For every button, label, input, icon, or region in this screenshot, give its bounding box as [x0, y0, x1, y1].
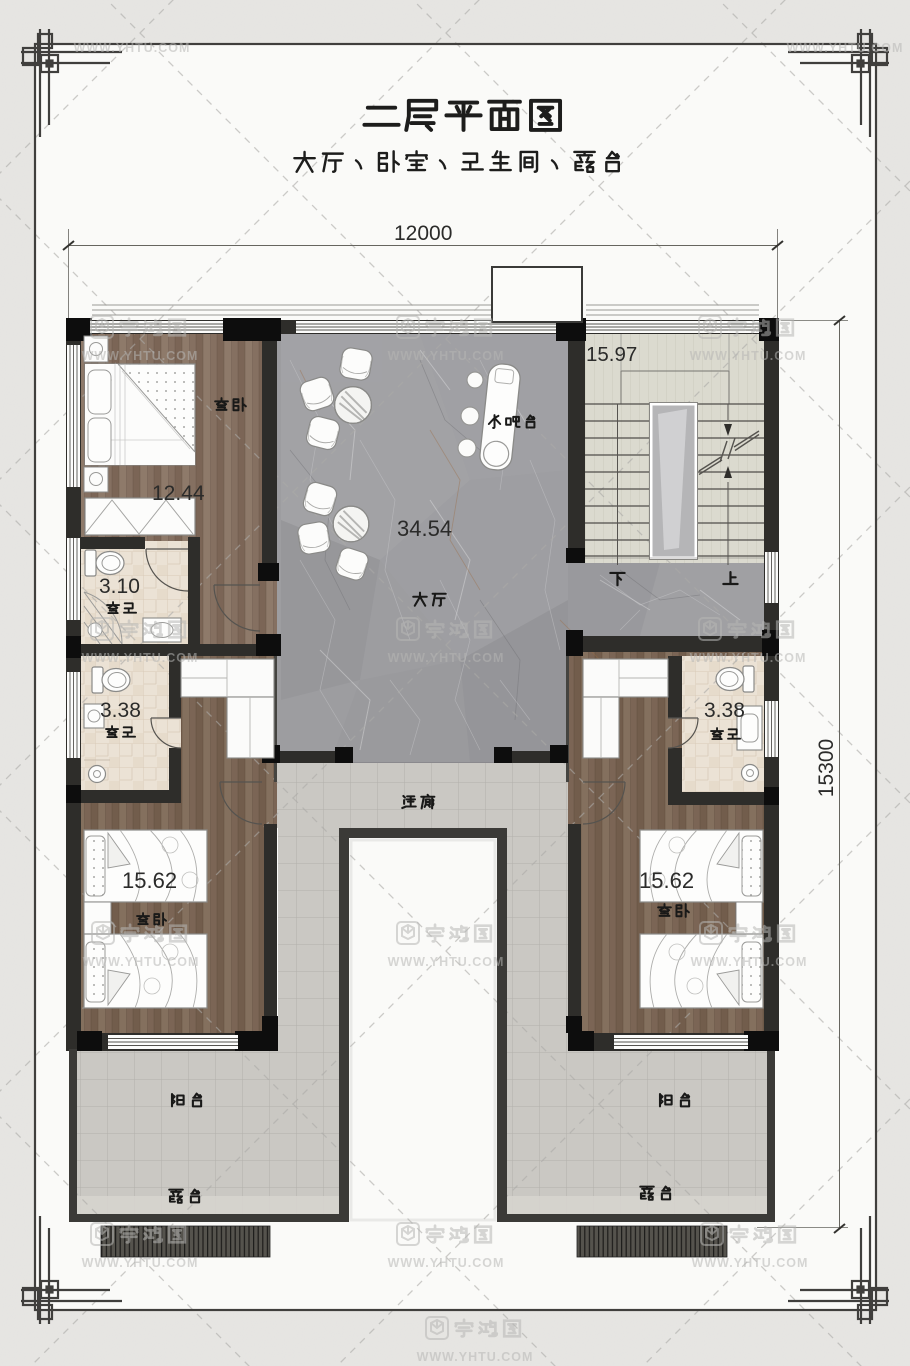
svg-text:15.97: 15.97	[586, 343, 637, 366]
svg-text:3.38: 3.38	[100, 699, 141, 722]
svg-text:15.62: 15.62	[122, 868, 177, 893]
svg-text:15.62: 15.62	[639, 868, 694, 893]
svg-text:34.54: 34.54	[397, 516, 452, 541]
svg-text:12.44: 12.44	[152, 482, 205, 505]
svg-text:3.10: 3.10	[99, 575, 140, 598]
svg-text:3.38: 3.38	[704, 699, 745, 722]
svg-text:15300: 15300	[815, 739, 838, 797]
svg-text:12000: 12000	[394, 222, 452, 245]
